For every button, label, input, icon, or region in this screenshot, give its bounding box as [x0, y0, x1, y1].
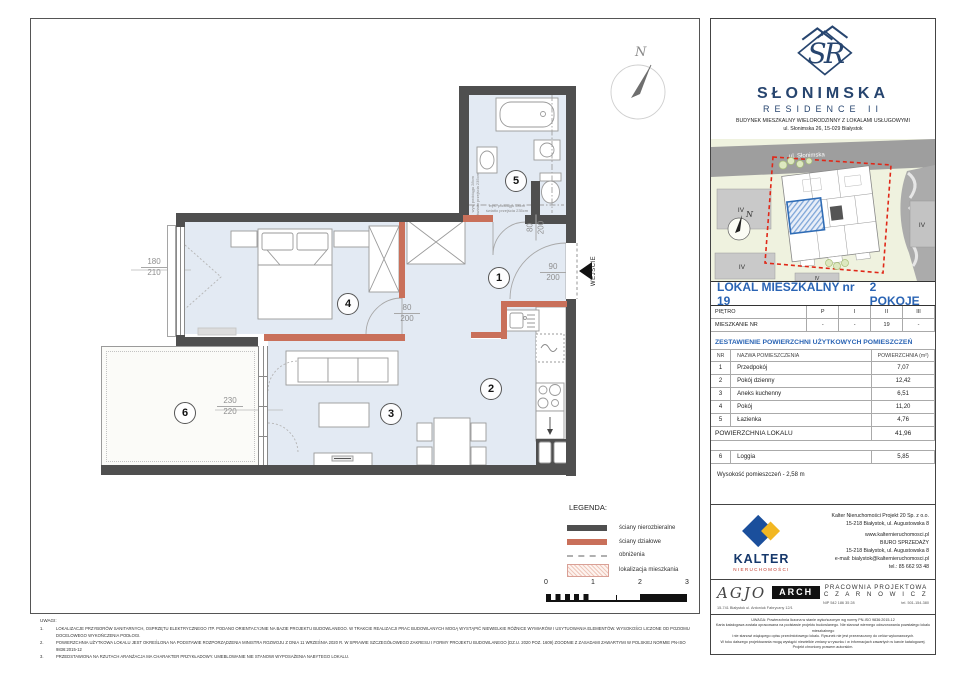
scale-bar-rule	[546, 591, 687, 602]
room-label-kitchen: 3	[380, 403, 402, 425]
row-area: 7,07	[872, 362, 935, 375]
uwagi-title: UWAGI:	[40, 617, 690, 625]
room-label-hall: 1	[488, 267, 510, 289]
dim-entrance-door: 90 200	[540, 262, 566, 283]
north-label: N	[635, 45, 646, 60]
architect-address: 15-741 Białystok ul. Antoniuk Fabryczny …	[717, 606, 823, 610]
map-north-label: N	[745, 210, 754, 219]
building-left-bottom-floors: IV	[739, 264, 746, 271]
bathtub	[496, 98, 558, 131]
bath-door-swing	[493, 222, 526, 255]
partition-bedroom-vertical	[399, 222, 405, 298]
chair-1	[417, 423, 432, 441]
scale-number-1: 1	[587, 579, 599, 586]
legend-swatch-drops	[567, 555, 607, 557]
legend-label-walls: ściany nierozbieralne	[619, 525, 675, 531]
building-right-floors: IV	[919, 222, 926, 229]
room-label-living: 2	[480, 378, 502, 400]
kalter-logo	[740, 512, 784, 550]
agency-subname: NIERUCHOMOŚCI	[733, 567, 789, 572]
loggia-row: 6 Loggia 5,85	[711, 450, 935, 464]
area-table: NR NAZWA POMIESZCZENIA POWIERZCHNIA (m²)…	[711, 349, 935, 441]
wall-bottom	[101, 465, 576, 475]
apartment-row-label: MIESZKANIE NR	[711, 319, 807, 332]
sofa-cushion-1	[298, 358, 328, 382]
pillow-right	[297, 233, 328, 250]
shaft-fixture-1	[539, 442, 551, 463]
dishwasher-space	[536, 334, 564, 362]
row-area: 6,51	[872, 388, 935, 401]
loggia-area-value: 5,85	[872, 451, 935, 464]
pillow-left	[262, 233, 293, 250]
chair-4	[471, 447, 486, 465]
total-area: 41,96	[872, 427, 935, 441]
uwagi-item: 3. PRZEDSTAWIONA NA RZUTACH ARANŻACJA MA…	[40, 653, 690, 660]
wall-bath-top	[459, 86, 576, 95]
bedroom-dresser	[198, 328, 236, 335]
entrance-opening	[566, 243, 576, 299]
logo-monogram: SR	[807, 37, 845, 70]
site-map-section: ul. Słonimska IV IV IV IV	[711, 139, 935, 281]
agency-logo-block: KALTER NIERUCHOMOŚCI	[717, 512, 806, 572]
legend-label-drops: obniżenia	[619, 552, 645, 558]
building-cluster	[782, 166, 881, 268]
title-block-panel: II SR SŁONIMSKA RESIDENCE II BUDYNEK MIE…	[710, 18, 936, 655]
agency-section: KALTER NIERUCHOMOŚCI Kalter Nieruchomośc…	[711, 504, 935, 579]
room-label-loggia: 6	[174, 402, 196, 424]
area-table-header: ZESTAWIENIE POWIERZCHNI UŻYTKOWYCH POMIE…	[711, 332, 935, 349]
floor-row-label: PIĘTRO	[711, 306, 807, 319]
scale-number-3: 3	[681, 579, 693, 586]
chair-3	[471, 423, 486, 441]
dim-loggia-door: 230 220	[217, 396, 243, 417]
row-nr: 4	[711, 401, 731, 414]
col-area: POWIERZCHNIA (m²)	[872, 350, 935, 362]
wall-bath-left	[459, 86, 469, 222]
toilet-tank	[540, 173, 561, 181]
building-left-top-floors: IV	[738, 207, 745, 214]
beam-note-horizontal: wys. podciągu 28cm światło przejścia 235…	[475, 203, 539, 213]
building-description: BUDYNEK MIESZKALNY WIELORODZINNY Z LOKAL…	[711, 118, 935, 134]
bedroom-window	[176, 227, 185, 335]
legend-title: LEGENDA:	[569, 503, 607, 512]
entrance-label: WEJŚCIE	[589, 241, 599, 301]
partition-bedroom-horizontal	[264, 334, 405, 341]
loggia-name: Loggia	[731, 451, 872, 464]
studio-line2: C Z A R N O W I C Z	[823, 591, 929, 598]
brand-subtitle: RESIDENCE II	[711, 104, 935, 114]
row-name: Przedpokój	[731, 362, 872, 375]
wall-right-upper	[566, 86, 576, 243]
dim-bedroom-window: 180 210	[141, 257, 167, 278]
ceiling-height-note: Wysokość pomieszczeń - 2,58 m	[711, 464, 935, 478]
floor-plan-sheet: 1 2 3 4 5 6 180 210 230 220 80 200 80 20…	[30, 18, 700, 614]
room-label-bathroom: 5	[505, 170, 527, 192]
north-arrow-line	[638, 65, 651, 92]
catalog-card-page: 1 2 3 4 5 6 180 210 230 220 80 200 80 20…	[0, 0, 960, 678]
scale-number-0: 0	[540, 579, 552, 586]
chair-2	[417, 447, 432, 465]
wall-bedroom-top	[176, 213, 469, 222]
legend-swatch-partitions	[567, 539, 607, 545]
highlighted-unit	[787, 198, 825, 234]
row-area: 4,76	[872, 414, 935, 427]
unit-room-count: 2 POKOJE	[870, 280, 929, 308]
loggia-window-door	[258, 346, 268, 465]
nightstand-left	[231, 231, 257, 247]
row-area: 12,42	[872, 375, 935, 388]
developer-logo-section: II SR SŁONIMSKA RESIDENCE II BUDYNEK MIE…	[711, 19, 935, 139]
coffee-table	[319, 403, 369, 427]
dining-table	[434, 418, 470, 468]
arch-logo: ARCH	[772, 586, 820, 599]
loggia-door-swing-bottom	[268, 423, 298, 453]
row-name: Pokój dzienny	[731, 375, 872, 388]
studio-tel: tel. 501-154-380	[901, 601, 929, 605]
brand-name: SŁONIMSKA	[711, 85, 935, 103]
architect-section: AGJOARCH 15-741 Białystok ul. Antoniuk F…	[711, 579, 935, 614]
partition-kitchen-horizontal	[501, 301, 567, 307]
unit-title: LOKAL MIESZKALNY nr 19	[717, 280, 870, 308]
floor-plan: 1 2 3 4 5 6 180 210 230 220 80 200 80 20…	[31, 19, 699, 613]
bedroom-window-swing	[185, 245, 221, 309]
row-name: Pokój	[731, 401, 872, 414]
wall-right-lower	[566, 299, 576, 476]
legend-swatch-location	[567, 564, 609, 577]
agjo-block: AGJOARCH 15-741 Białystok ul. Antoniuk F…	[717, 584, 823, 610]
legend-label-location: lokalizacja mieszkania	[619, 567, 678, 573]
row-area: 11,20	[872, 401, 935, 414]
studio-line1: PRACOWNIA PROJEKTOWA	[823, 584, 929, 591]
col-nr: NR	[711, 350, 731, 362]
row-name: Łazienka	[731, 414, 872, 427]
partition-hall-living	[471, 332, 507, 338]
room-label-bedroom: 4	[337, 293, 359, 315]
bedroom-window-sill	[167, 225, 176, 337]
sofa-cushion-2	[328, 358, 358, 382]
total-label: POWIERZCHNIA LOKALU	[711, 427, 872, 441]
row-nr: 2	[711, 375, 731, 388]
unit-title-bar: LOKAL MIESZKALNY nr 19 2 POKOJE	[711, 281, 935, 306]
agjo-logo: AGJO	[717, 584, 766, 602]
uwagi-notes: UWAGI: 1. LOKALIZACJE PRZYBORÓW SANITARN…	[40, 617, 690, 661]
toilet-bowl	[542, 181, 560, 203]
wall-bedroom-bottom-left	[176, 337, 258, 346]
loggia-nr: 6	[711, 451, 731, 464]
legend-label-partitions: ściany działowe	[619, 539, 661, 545]
uwagi-item: 1. LOKALIZACJE PRZYBORÓW SANITARNYCH, OS…	[40, 625, 690, 639]
sofa-cushion-3	[358, 358, 388, 382]
dim-bath-door: 80 200	[526, 215, 547, 241]
beam-note-vertical: wys. podciągu 28cm światło przejścia 235…	[470, 164, 480, 224]
disclaimer-section: UWAGA: Powierzchnia liczona w stanie wyk…	[711, 614, 935, 654]
col-name: NAZWA POMIESZCZENIA	[731, 350, 872, 362]
row-nr: 5	[711, 414, 731, 427]
sr-logo: II SR	[791, 23, 855, 79]
scale-number-2: 2	[634, 579, 646, 586]
row-name: Aneks kuchenny	[731, 388, 872, 401]
studio-nip: NIP 542 186 35 28	[823, 601, 855, 605]
agency-name: KALTER	[734, 552, 790, 566]
north-arrow-needle	[631, 65, 651, 98]
uwagi-item: 2. POWIERZCHNIA UŻYTKOWA LOKALU JEST OKR…	[40, 639, 690, 653]
row-nr: 3	[711, 388, 731, 401]
floor-table: PIĘTRO P I II III MIESZKANIE NR - - 19 -	[711, 306, 935, 332]
scale-bar: 0 1 2 3	[540, 579, 700, 609]
site-map: ul. Słonimska IV IV IV IV	[711, 139, 935, 281]
legend-swatch-walls	[567, 525, 607, 531]
studio-block: PRACOWNIA PROJEKTOWA C Z A R N O W I C Z…	[823, 584, 929, 610]
row-nr: 1	[711, 362, 731, 375]
dim-bedroom-door: 80 200	[394, 303, 420, 324]
agency-contact: Kalter Nieruchomości Projekt 20 Sp. z o.…	[806, 512, 929, 572]
